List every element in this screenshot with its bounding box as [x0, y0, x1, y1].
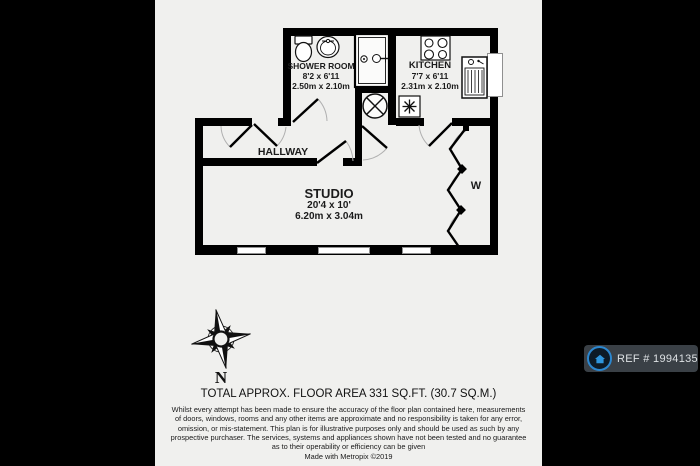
- wall: [343, 158, 362, 166]
- house-icon: [587, 346, 612, 371]
- wall: [452, 118, 498, 126]
- window: [237, 247, 266, 254]
- ref-number: REF # 1994135: [617, 353, 698, 365]
- window: [487, 53, 503, 97]
- kitchen-dims-metric: 2.31m x 2.10m: [392, 81, 468, 91]
- wall: [278, 118, 291, 126]
- compass-north-label: N: [206, 368, 236, 388]
- room-label-kitchen: KITCHEN 7'7 x 6'11 2.31m x 2.10m: [392, 61, 468, 91]
- wall: [195, 118, 203, 255]
- metropix-credit: Made with Metropix ©2019: [155, 452, 542, 461]
- wall: [195, 118, 252, 126]
- wall: [203, 158, 317, 166]
- studio-dims-metric: 6.20m x 3.04m: [262, 211, 396, 222]
- shower-room-name: SHOWER ROOM: [283, 61, 359, 71]
- floorplan-page: N SHOWER ROOM 8'2 x 6'11 2.50m x 2.10m K…: [0, 0, 700, 466]
- studio-name: STUDIO: [262, 187, 396, 200]
- ref-badge: REF # 1994135: [584, 345, 698, 372]
- shower-room-dims-metric: 2.50m x 2.10m: [283, 81, 359, 91]
- wall: [396, 118, 424, 126]
- wall: [355, 87, 362, 166]
- room-label-shower: SHOWER ROOM 8'2 x 6'11 2.50m x 2.10m: [283, 61, 359, 91]
- shower-room-dims-imperial: 8'2 x 6'11: [283, 71, 359, 81]
- room-label-hallway: HALLWAY: [246, 146, 320, 158]
- wardrobe-label: W: [466, 180, 486, 192]
- room-label-studio: STUDIO 20'4 x 10' 6.20m x 3.04m: [262, 187, 396, 222]
- window: [318, 247, 370, 254]
- kitchen-dims-imperial: 7'7 x 6'11: [392, 71, 468, 81]
- total-floor-area-title: TOTAL APPROX. FLOOR AREA 331 SQ.FT. (30.…: [155, 388, 542, 400]
- window: [402, 247, 431, 254]
- studio-dims-imperial: 20'4 x 10': [262, 200, 396, 211]
- disclaimer-text: Whilst every attempt has been made to en…: [155, 405, 542, 451]
- hallway-name: HALLWAY: [246, 146, 320, 158]
- kitchen-name: KITCHEN: [392, 61, 468, 71]
